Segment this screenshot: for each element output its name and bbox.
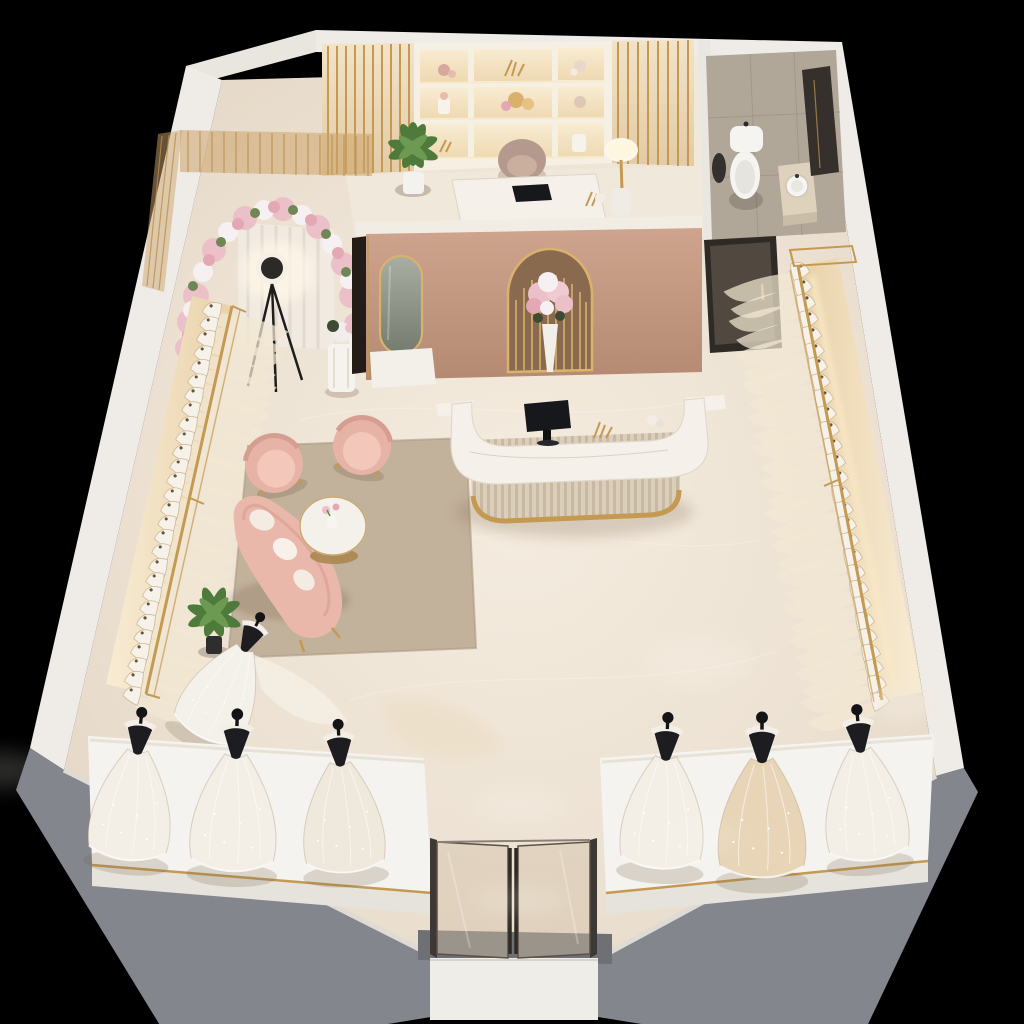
platform-mannequins-right: [616, 700, 915, 893]
mirror-step: [370, 348, 436, 388]
arched-mirror: [380, 256, 422, 354]
entry-mat: [430, 958, 598, 1020]
entrance: [418, 838, 612, 1020]
wall-opening: [352, 236, 368, 374]
render-canvas: [0, 0, 1024, 1024]
pink-feature-wall: [352, 216, 702, 388]
toilet: [729, 122, 763, 211]
arched-gold-niche: [508, 249, 592, 372]
gold-mesh-screen-top: [180, 130, 372, 176]
dark-vase: [712, 153, 726, 183]
boutique-floorplan-svg: [0, 0, 1024, 1024]
lounge: [228, 412, 476, 658]
